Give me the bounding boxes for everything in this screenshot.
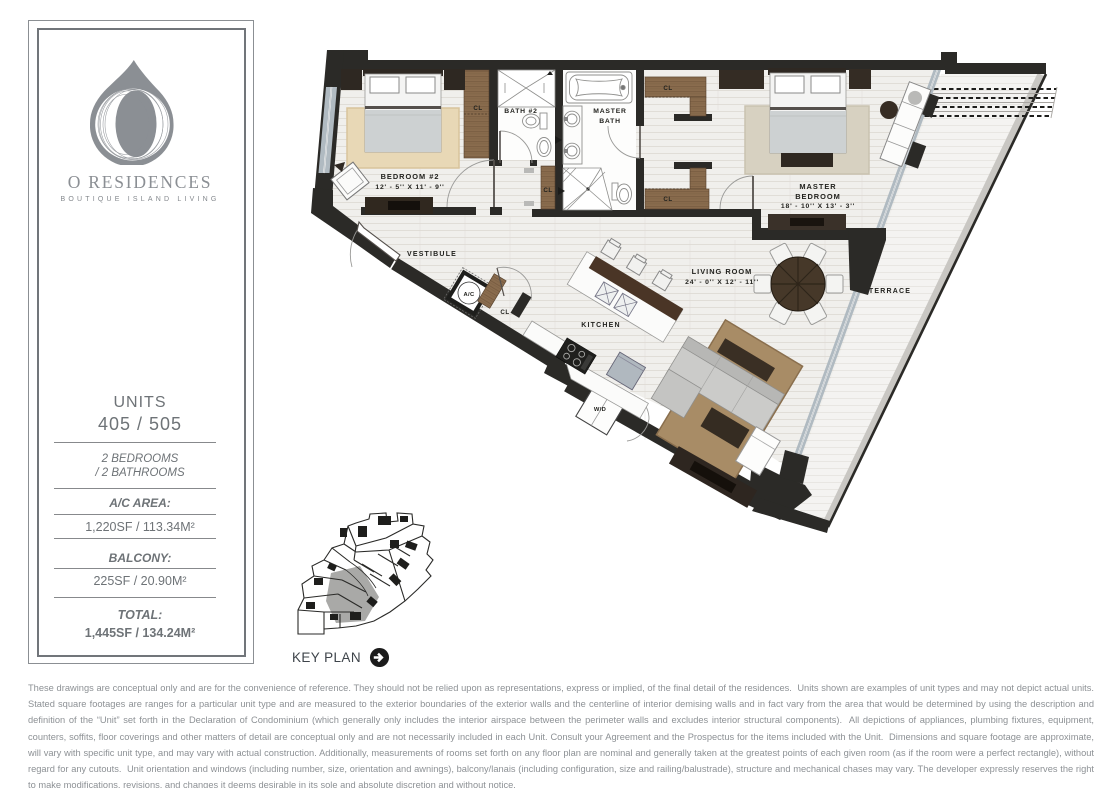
svg-text:CL: CL [473, 105, 482, 112]
svg-text:LIVING ROOM: LIVING ROOM [692, 267, 753, 276]
svg-text:VESTIBULE: VESTIBULE [407, 251, 457, 258]
svg-text:CL: CL [543, 187, 552, 194]
svg-text:12' - 5'' X 11' - 9'': 12' - 5'' X 11' - 9'' [375, 184, 444, 191]
svg-text:24' - 0'' X 12' - 11'': 24' - 0'' X 12' - 11'' [685, 279, 759, 286]
svg-text:CL: CL [663, 196, 672, 203]
svg-text:CL: CL [663, 85, 672, 92]
svg-text:A/C: A/C [464, 292, 475, 298]
svg-text:CL: CL [500, 309, 509, 316]
svg-text:KITCHEN: KITCHEN [581, 322, 621, 329]
svg-text:W/D: W/D [594, 407, 606, 413]
svg-text:18' - 10'' X 13' - 3'': 18' - 10'' X 13' - 3'' [781, 203, 855, 210]
svg-text:MASTER: MASTER [593, 108, 627, 115]
svg-text:BATH: BATH [599, 118, 621, 125]
svg-text:TERRACE: TERRACE [869, 288, 911, 295]
svg-text:MASTER: MASTER [799, 182, 836, 191]
svg-text:BEDROOM #2: BEDROOM #2 [381, 172, 440, 181]
svg-text:BEDROOM: BEDROOM [795, 192, 841, 201]
svg-text:BATH #2: BATH #2 [504, 108, 537, 115]
